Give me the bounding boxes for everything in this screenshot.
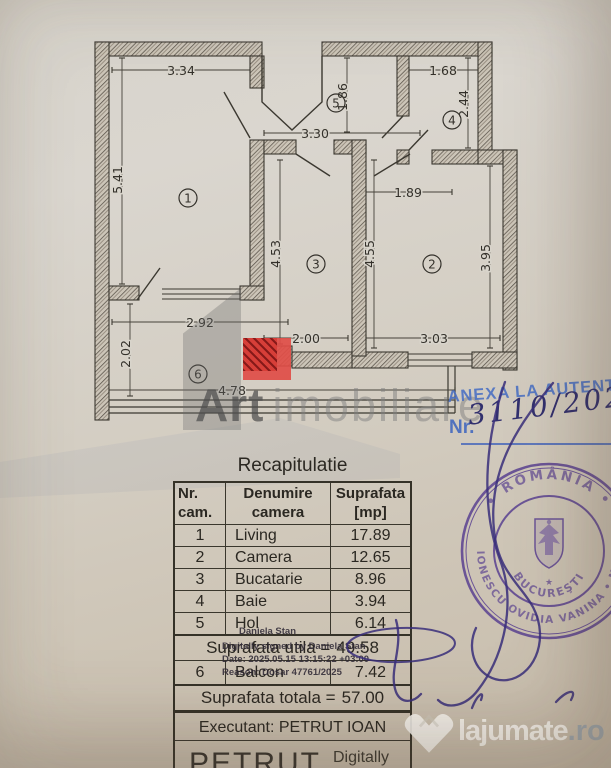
header-denumire: Denumire camera (226, 483, 331, 524)
digital-signature-reason: Reason: Dosar 47761/2025 (222, 667, 342, 678)
watermark-logo-hatch (243, 338, 277, 371)
plan-walls (95, 42, 517, 420)
digital-signature-line: Digitally signed by Daniela Stan (222, 641, 366, 652)
watermark-brand-bold: Art (195, 379, 264, 431)
suprafata-totala-row: Suprafata totala = 57.00 (175, 684, 410, 710)
cell-mp: 6.14 (331, 613, 410, 634)
executant-row: Executant: PETRUT IOAN (175, 710, 410, 740)
header-nr-cam: Nr. cam. (175, 483, 226, 524)
dim-label: 3.34 (167, 63, 195, 78)
signer-note: Digitally signed (333, 749, 410, 768)
dim-label: 4.53 (268, 240, 283, 268)
dimension-labels: 3.34 5.41 1.86 3.30 1.68 2.44 1.89 4.53 … (110, 63, 493, 398)
dim-label: 2.00 (292, 331, 320, 346)
house-heart-icon (400, 703, 458, 759)
entrance-door (262, 56, 322, 130)
coat-of-arms-eagle-icon (535, 519, 563, 568)
dim-label: 3.95 (478, 244, 493, 272)
dim-label: 1.68 (429, 63, 457, 78)
cell-mp: 17.89 (331, 525, 410, 546)
digital-signature-name: Daniela Stan (239, 626, 296, 637)
cell-name: Living (226, 525, 331, 546)
stamp-city-text: BUCUREŞTI (511, 570, 588, 601)
table-row: 3 Bucatarie 8.96 (175, 568, 410, 590)
logo-tld: .ro (568, 715, 605, 748)
annex-underline (461, 443, 611, 445)
header-suprafata: Suprafata [mp] (331, 483, 410, 524)
room-number-living: 1 (184, 192, 192, 206)
scanned-document-photo: 3.34 5.41 1.86 3.30 1.68 2.44 1.89 4.53 … (0, 0, 611, 768)
stamp-country-text: • ROMÂNIA • (483, 466, 611, 510)
stamp-star: ★ (545, 578, 553, 588)
cell-name: Camera (226, 547, 331, 568)
room-number-camera: 2 (428, 258, 436, 272)
recap-header-row: Nr. cam. Denumire camera Suprafata [mp] (175, 483, 410, 524)
totala-label: Suprafata totala = (201, 688, 336, 708)
watermark-logo-red-square (243, 338, 291, 380)
cell-nr: 1 (175, 525, 226, 546)
room-number-hol: 5 (332, 97, 340, 111)
dim-label: 3.03 (420, 331, 448, 346)
signer-row: PETRUT Digitally signed (175, 740, 410, 768)
totala-value: 57.00 (342, 688, 385, 708)
cell-nr: 4 (175, 591, 226, 612)
table-row: 4 Baie 3.94 (175, 590, 410, 612)
cell-name: Bucatarie (226, 569, 331, 590)
recap-title: Recapitulatie (173, 455, 412, 477)
dim-label: 4.55 (362, 240, 377, 268)
cell-mp: 3.94 (331, 591, 410, 612)
table-row: 2 Camera 12.65 (175, 546, 410, 568)
dim-label: 5.41 (110, 166, 125, 194)
notary-stamp: • ROMÂNIA • IONESCU OVIDIA VANINA • NOT … (462, 464, 611, 638)
stamp-name-text: IONESCU OVIDIA VANINA • NOT (474, 550, 611, 626)
watermark-brand: Artimobiliare (195, 378, 485, 432)
recap-table: Nr. cam. Denumire camera Suprafata [mp] … (173, 481, 412, 768)
cell-mp: 8.96 (331, 569, 410, 590)
cell-mp: 12.65 (331, 547, 410, 568)
signer-name: PETRUT (189, 747, 321, 768)
logo-text: lajumate (458, 715, 568, 748)
cell-nr: 3 (175, 569, 226, 590)
dim-label: 2.02 (118, 340, 133, 368)
dim-label: 3.30 (301, 126, 329, 141)
digital-signature-date: Date: 2025.05.15 13:15:22 +03:00 (222, 654, 369, 665)
cell-nr: 2 (175, 547, 226, 568)
table-row: 1 Living 17.89 (175, 524, 410, 546)
room-number-baie: 4 (448, 114, 456, 128)
cell-name: Baie (226, 591, 331, 612)
dim-label: 1.89 (394, 185, 422, 200)
cell-nr: 6 (175, 661, 226, 684)
cell-nr: 5 (175, 613, 226, 634)
room-number-bucatarie: 3 (312, 258, 320, 272)
lajumate-logo: lajumate.ro (400, 703, 605, 759)
